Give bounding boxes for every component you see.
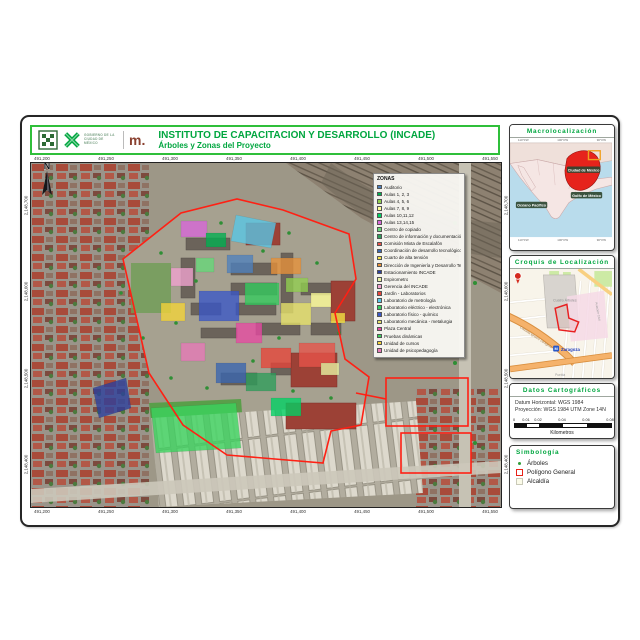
legend-item-label: Espirometro — [384, 277, 408, 282]
coordinate-label: 491,400 — [290, 509, 306, 514]
scale-tick-label: 0.04 — [558, 418, 565, 422]
northing-label: 2,148,500 — [24, 368, 29, 388]
legend-item: Espirometro — [377, 276, 461, 283]
legend-color-swatch — [377, 234, 382, 239]
zone-mecanica — [281, 303, 311, 325]
coordinate-label: 491,300 — [162, 509, 178, 514]
legend-item-label: Cuarto de alta tensión — [384, 255, 428, 260]
utm-easting-labels-top: 491,200491,250491,300491,350491,400491,4… — [30, 156, 502, 161]
legend-item: Coordinación de desarrollo tecnológico — [377, 247, 461, 254]
zone-jardin — [261, 348, 291, 368]
legend-item-label: Laboratorio mecánica - metalurgia — [384, 319, 452, 324]
zone-aulas-4-6 — [286, 278, 308, 292]
coordinate-label: 491,550 — [482, 156, 498, 161]
legend-color-swatch — [377, 320, 382, 325]
legend-item: Unidad de cursos — [377, 340, 461, 347]
legend-item: Gerencia del INCADE — [377, 283, 461, 290]
coord-label: 100°0'W — [557, 138, 568, 142]
metro-logo: m. — [129, 133, 145, 147]
legend-item-label: Aulas 13,14,15 — [384, 220, 414, 225]
scale-tick-label: 0.02 — [534, 418, 541, 422]
legend-item-label: Aulas 10,11,12 — [384, 213, 414, 218]
zone-aulas-1-3 — [206, 233, 226, 247]
coordinate-label: 491,500 — [418, 509, 434, 514]
legend-color-swatch — [377, 213, 382, 218]
coordinate-label: 491,450 — [354, 509, 370, 514]
coordinate-label: 491,550 — [482, 509, 498, 514]
legend-item: Aulas 1, 2, 3 — [377, 191, 461, 198]
legend-item-label: Laboratorio físico - químico — [384, 312, 438, 317]
simbologia-item-arboles: Árboles — [510, 458, 614, 467]
coordinate-label: 491,400 — [290, 156, 306, 161]
northing-label: 2,148,600 — [504, 282, 509, 302]
northing-label: 2,148,400 — [504, 455, 509, 475]
coordinate-label: 491,350 — [226, 509, 242, 514]
legend-color-swatch — [377, 263, 382, 268]
scale-tick-label: 0.06 — [582, 418, 589, 422]
map-layout-sheet: GOBIERNO DE LA CIUDAD DE MÉXICO m. INSTI… — [20, 115, 620, 527]
legend-color-swatch — [377, 334, 382, 339]
legend-item: Aulas 7, 8, 9 — [377, 205, 461, 212]
zone-aulas-13-15 — [181, 221, 207, 237]
coordinate-label: 491,500 — [418, 156, 434, 161]
macro-coords-top: 110°0'W 100°0'W 90°0'W — [510, 138, 614, 142]
svg-text:Ciudad de México: Ciudad de México — [568, 168, 600, 172]
macro-coords-bottom: 110°0'W 100°0'W 90°0'W — [510, 238, 614, 242]
legend-item-label: Estacionamiento INCADE — [384, 270, 436, 275]
legend-item-label: Laboratorio de metrología — [384, 298, 436, 303]
coordinate-label: 491,200 — [34, 156, 50, 161]
scale-unit-label: Kilometros — [514, 430, 610, 436]
legend-item: Aulas 4, 5, 6 — [377, 198, 461, 205]
cdmx-x-icon — [63, 131, 81, 149]
legend-item-label: Aulas 4, 5, 6 — [384, 199, 409, 204]
header-divider — [123, 131, 124, 149]
legend-color-swatch — [377, 341, 382, 346]
zonas-legend: ZONAS Auditorio Aulas 1, 2, 3 Aulas 4, 5… — [373, 173, 465, 358]
alcaldia-fill-icon — [516, 478, 523, 485]
zone-cursos — [161, 303, 185, 321]
svg-text:Océano Pacífico: Océano Pacífico — [517, 203, 547, 207]
metro-station: M Zaragoza — [553, 345, 580, 351]
legend-item: Laboratorio eléctrico - electrónica — [377, 304, 461, 311]
datos-lines: Datum Horizontal: WGS 1984 Proyección: W… — [510, 397, 614, 416]
legend-item-label: Gerencia del INCADE — [384, 284, 428, 289]
coordinate-label: 491,200 — [34, 509, 50, 514]
legend-item-label: Laboratorio eléctrico - electrónica — [384, 305, 451, 310]
legend-color-swatch — [377, 185, 382, 190]
legend-item-label: Plaza Central — [384, 326, 411, 331]
panel-croquis: Croquis de Localización — [509, 255, 615, 379]
zone-copiado — [196, 258, 214, 272]
polygon-outline-icon — [516, 469, 523, 476]
zone-fisico-quimico — [199, 291, 239, 321]
legend-color-swatch — [377, 348, 382, 353]
legend-item: Dirección de Ingeniería y Desarrollo Tec… — [377, 262, 461, 269]
legend-title: ZONAS — [377, 176, 461, 182]
zone-direccion — [271, 258, 301, 274]
zone-psicopedagogia — [181, 343, 205, 361]
croquis-title: Croquis de Localización — [510, 256, 614, 269]
colonia-label: Cuatro Árboles — [553, 298, 577, 302]
coord-label: 110°0'W — [518, 138, 529, 142]
legend-item-label: Auditorio — [384, 185, 402, 190]
zone-pruebas — [151, 403, 241, 453]
street-label: Puebla — [555, 372, 565, 376]
coord-label: 90°0'W — [597, 238, 606, 242]
page-canvas: GOBIERNO DE LA CIUDAD DE MÉXICO m. INSTI… — [0, 0, 640, 640]
panel-simbologia: Simbología Árboles Polígono General Alca… — [509, 445, 615, 509]
scale-tick-label: 0 — [513, 418, 515, 422]
legend-item-label: Comisión Mixta de Escalafón — [384, 241, 442, 246]
legend-item: Laboratorio mecánica - metalurgia — [377, 318, 461, 325]
svg-text:N: N — [44, 163, 51, 171]
tree-point-icon — [518, 462, 521, 465]
zone-plaza-central — [236, 323, 262, 343]
utm-northing-labels-left: 2,148,700 2,148,600 2,148,500 2,148,400 — [22, 162, 30, 508]
legend-item: Comisión Mixta de Escalafón — [377, 240, 461, 247]
mexico-overview-map: Ciudad de México Golfo de México Océano … — [510, 142, 612, 238]
legend-item-label: Unidad de psicopedagogía — [384, 348, 438, 353]
coordinate-label: 491,300 — [162, 156, 178, 161]
coordinate-label: 491,350 — [226, 156, 242, 161]
legend-item: Centro de información y documentación té… — [377, 233, 461, 240]
legend-items: Auditorio Aulas 1, 2, 3 Aulas 4, 5, 6 Au… — [377, 184, 461, 354]
title-block: GOBIERNO DE LA CIUDAD DE MÉXICO m. INSTI… — [30, 125, 500, 155]
legend-color-swatch — [377, 227, 382, 232]
northing-label: 2,148,600 — [24, 282, 29, 302]
northing-label: 2,148,700 — [504, 195, 509, 215]
simbologia-label: Alcaldía — [527, 478, 549, 485]
svg-text:M: M — [554, 346, 557, 351]
svg-text:Golfo de México: Golfo de México — [572, 193, 601, 197]
street-map: Cuatro Árboles M Zaragoza Calzada Ignaci… — [510, 269, 612, 379]
legend-item-label: Unidad de cursos — [384, 341, 419, 346]
legend-color-swatch — [377, 270, 382, 275]
scale-tick-label: 0.08 — [606, 418, 613, 422]
legend-item: Unidad de psicopedagogía — [377, 347, 461, 354]
metro-label: Zaragoza — [561, 346, 580, 351]
legend-item-label: Pruebas dinámicas — [384, 334, 422, 339]
panel-macrolocalizacion: Macrolocalización 110°0'W 100°0'W 90°0'W… — [509, 124, 615, 251]
gobierno-text: GOBIERNO DE LA CIUDAD DE MÉXICO — [84, 134, 118, 145]
legend-item: Plaza Central — [377, 325, 461, 332]
legend-item-label: Centro de copiado — [384, 227, 421, 232]
legend-item: Estacionamiento INCADE — [377, 269, 461, 276]
legend-color-swatch — [377, 291, 382, 296]
scale-bar-segments — [514, 423, 612, 429]
legend-item: Pruebas dinámicas — [377, 332, 461, 339]
datos-title: Datos Cartográficos — [510, 384, 614, 397]
utm-easting-labels-bottom: 491,200491,250491,300491,350491,400491,4… — [30, 509, 502, 514]
coord-label: 100°0'W — [557, 238, 568, 242]
legend-color-swatch — [377, 312, 382, 317]
datum-line: Datum Horizontal: WGS 1984 — [515, 400, 610, 408]
legend-color-swatch — [377, 298, 382, 303]
zone-gerencia — [171, 268, 193, 286]
legend-item: Auditorio — [377, 184, 461, 191]
macro-title: Macrolocalización — [510, 125, 614, 138]
projection-line: Proyección: WGS 1984 UTM Zone 14N — [515, 407, 610, 415]
legend-color-swatch — [377, 305, 382, 310]
coordinate-label: 491,250 — [98, 156, 114, 161]
simbologia-item-alcaldia: Alcaldía — [510, 476, 614, 485]
residential-blocks-southeast — [416, 388, 501, 507]
simbologia-label: Árboles — [527, 460, 548, 467]
cdmx-shield-logo — [38, 130, 58, 150]
legend-item-label: Dirección de Ingeniería y Desarrollo Tec… — [384, 263, 461, 268]
legend-color-swatch — [377, 256, 382, 261]
legend-color-swatch — [377, 249, 382, 254]
zone-alta-tension — [331, 313, 345, 323]
simbologia-item-poligono: Polígono General — [510, 467, 614, 476]
legend-item-label: Coordinación de desarrollo tecnológico — [384, 248, 461, 253]
legend-item-label: Jardín - Laboratorios — [384, 291, 426, 296]
northing-label: 2,148,700 — [24, 195, 29, 215]
simbologia-title: Simbología — [510, 446, 614, 458]
legend-item: Laboratorio físico - químico — [377, 311, 461, 318]
legend-item: Aulas 13,14,15 — [377, 219, 461, 226]
zone-informacion — [246, 373, 276, 391]
legend-item: Centro de copiado — [377, 226, 461, 233]
legend-item: Cuarto de alta tensión — [377, 254, 461, 261]
legend-color-swatch — [377, 284, 382, 289]
scale-bar: 00.010.020.040.060.08 Kilometros — [514, 418, 610, 436]
legend-color-swatch — [377, 192, 382, 197]
zone-auditorio — [227, 255, 253, 273]
gobierno-cdmx-logo: GOBIERNO DE LA CIUDAD DE MÉXICO — [63, 131, 118, 149]
legend-item-label: Aulas 1, 2, 3 — [384, 192, 409, 197]
legend-color-swatch — [377, 277, 382, 282]
legend-color-swatch — [377, 206, 382, 211]
northing-label: 2,148,500 — [504, 368, 509, 388]
northing-label: 2,148,400 — [24, 455, 29, 475]
simbologia-label: Polígono General — [527, 469, 575, 476]
legend-item-label: Aulas 7, 8, 9 — [384, 206, 409, 211]
map-subtitle: Árboles y Zonas del Proyecto — [158, 141, 435, 150]
zone-espirometro — [321, 363, 339, 375]
zone-aulas-7-9 — [311, 293, 331, 307]
legend-color-swatch — [377, 220, 382, 225]
zone-coordinacion — [216, 363, 246, 383]
legend-item: Aulas 10,11,12 — [377, 212, 461, 219]
legend-color-swatch — [377, 242, 382, 247]
legend-item: Laboratorio de metrología — [377, 297, 461, 304]
main-map: N ZONAS Auditorio Aulas 1, 2, 3 Aulas 4,… — [30, 162, 502, 508]
zone-electrico — [245, 283, 279, 305]
coordinate-label: 491,450 — [354, 156, 370, 161]
zone-aulas-10-12 — [271, 398, 301, 416]
coord-label: 110°0'W — [518, 238, 529, 242]
legend-item-label: Centro de información y documentación té… — [384, 234, 461, 239]
legend-color-swatch — [377, 327, 382, 332]
scale-bar-ticks: 00.010.020.040.060.08 — [514, 418, 610, 423]
scale-tick-label: 0.01 — [522, 418, 529, 422]
legend-color-swatch — [377, 199, 382, 204]
title-texts: INSTITUTO DE CAPACITACIÓN Y DESARROLLO (… — [158, 130, 435, 150]
map-title: INSTITUTO DE CAPACITACIÓN Y DESARROLLO (… — [158, 130, 435, 141]
residential-blocks-west — [31, 163, 149, 507]
panel-datos-cartograficos: Datos Cartográficos Datum Horizontal: WG… — [509, 383, 615, 439]
coord-label: 90°0'W — [597, 138, 606, 142]
legend-item: Jardín - Laboratorios — [377, 290, 461, 297]
coordinate-label: 491,250 — [98, 509, 114, 514]
